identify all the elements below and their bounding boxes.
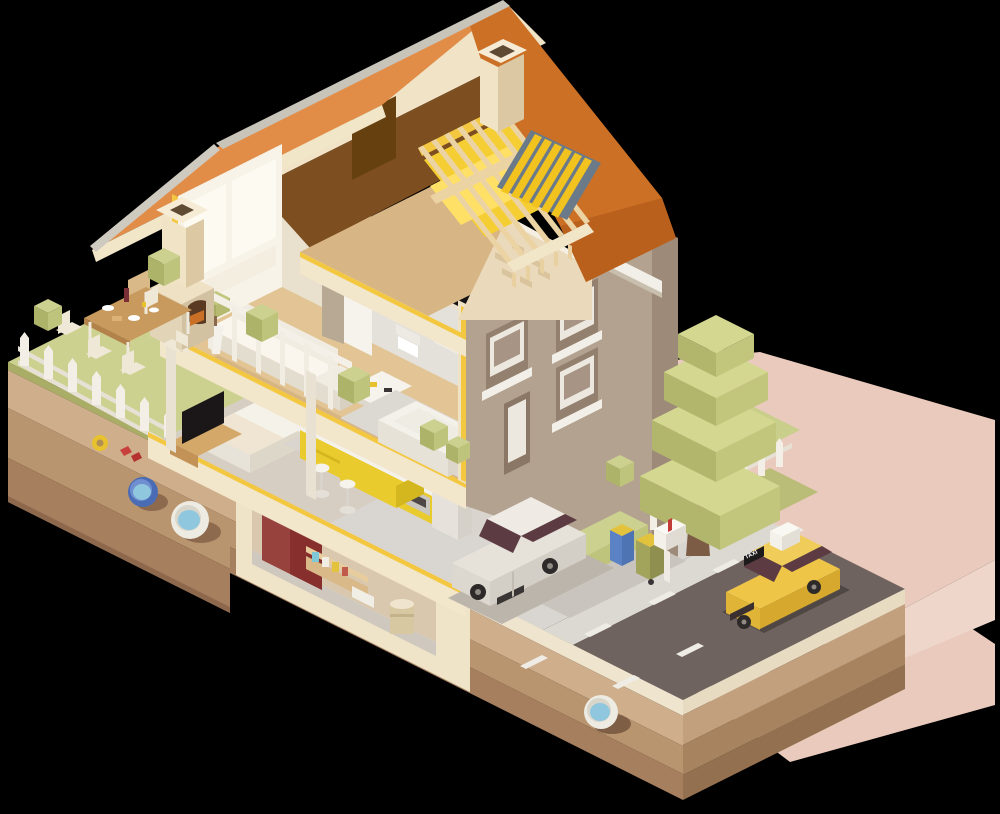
illustration-canvas: TAXI bbox=[0, 0, 1000, 814]
jar-yellow bbox=[332, 562, 339, 572]
chimney bbox=[477, 39, 527, 132]
isometric-house-cutaway: TAXI bbox=[0, 0, 1000, 814]
plate bbox=[149, 308, 159, 313]
car-wheel-hub bbox=[547, 563, 553, 569]
stool-base bbox=[340, 506, 356, 514]
chimney-right-face bbox=[498, 54, 524, 132]
cellar-barrel-band bbox=[390, 614, 414, 617]
bin-blue-front bbox=[610, 530, 622, 566]
mailbox-flag bbox=[668, 518, 672, 532]
taxi-wheel-hub bbox=[742, 620, 747, 625]
table-remote bbox=[384, 388, 392, 392]
stool-seat bbox=[340, 480, 356, 489]
utility-pipe-white-right-water bbox=[590, 703, 610, 721]
utility-pipe-white-left-water bbox=[178, 510, 200, 530]
bbq-chimney-side bbox=[186, 219, 204, 288]
chimney-left-face bbox=[480, 58, 498, 132]
bin-wheel bbox=[648, 579, 654, 585]
stool-stem bbox=[346, 486, 349, 508]
trash-bin-blue bbox=[610, 524, 634, 566]
plate bbox=[128, 315, 140, 321]
cellar-barrel-top bbox=[390, 599, 414, 609]
support-column bbox=[306, 370, 316, 500]
mailbox-post bbox=[664, 549, 670, 583]
jar-red bbox=[342, 567, 348, 576]
car-door-line bbox=[512, 571, 514, 597]
jar-white bbox=[322, 557, 329, 567]
entry-door-frame bbox=[508, 399, 526, 463]
stool-stem bbox=[320, 470, 323, 492]
wine-bottle bbox=[124, 288, 129, 302]
car-wheel-hub bbox=[475, 589, 481, 595]
bin-blue-side bbox=[622, 530, 634, 566]
jar-cyan bbox=[312, 552, 319, 562]
taxi-wheel-hub bbox=[812, 585, 817, 590]
utility-pipe-blue-water bbox=[133, 484, 151, 500]
plate bbox=[102, 305, 114, 311]
hose-ring-hole bbox=[97, 440, 104, 447]
plant-stem bbox=[214, 316, 217, 326]
bin-olive-front bbox=[636, 540, 650, 580]
bread-board bbox=[112, 316, 122, 321]
